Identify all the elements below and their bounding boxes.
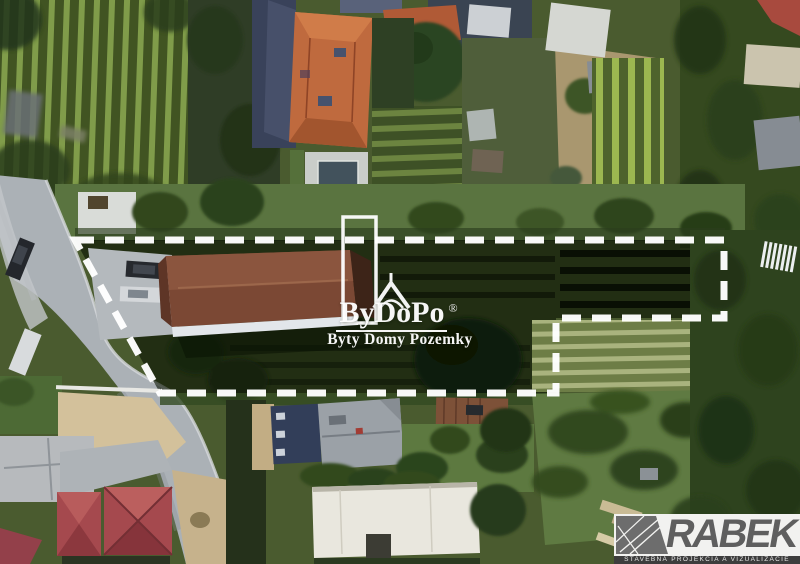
rabek-logo-box: RABEK [614, 514, 800, 556]
rabek-company-name: RABEK [658, 514, 800, 556]
brand-name: ByDoPo [336, 297, 447, 332]
aerial-photo: ByDoPo® Byty Domy Pozemky RABEK STAVEBNÁ… [0, 0, 800, 564]
registered-trademark-symbol: ® [448, 301, 457, 315]
bydopo-watermark-wordmark: ByDoPo® [327, 292, 467, 332]
bydopo-watermark-tagline: Byty Domy Pozemky [303, 331, 497, 349]
rabek-tagline: STAVEBNÁ PROJEKCIA A VIZUALIZÁCIE [614, 556, 800, 564]
aerial-scene [0, 0, 800, 564]
rabek-logo: RABEK STAVEBNÁ PROJEKCIA A VIZUALIZÁCIE [614, 514, 800, 564]
street-verge [55, 178, 745, 244]
